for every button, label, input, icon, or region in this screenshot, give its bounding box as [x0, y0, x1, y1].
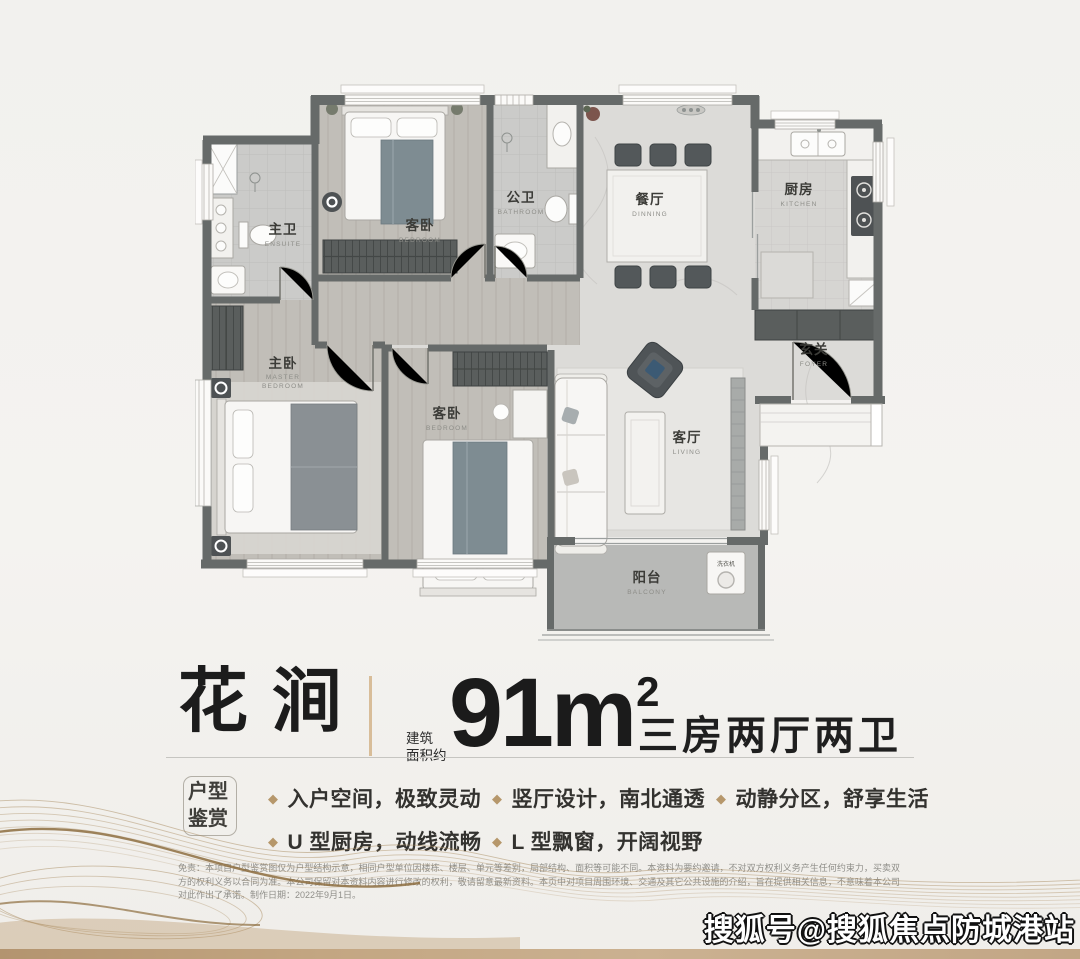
area-number: 91m — [449, 664, 634, 761]
svg-text:LIVING: LIVING — [673, 449, 702, 456]
wardrobe-top-bedroom — [323, 240, 457, 273]
svg-text:BEDROOM: BEDROOM — [262, 383, 304, 390]
area-value: 91m 2 — [449, 664, 660, 761]
room-label-ensuite: 主卫 ENSUITE — [265, 221, 302, 248]
layout-description: 三房两厅两卫 — [638, 703, 902, 761]
svg-text:厨房: 厨房 — [785, 181, 814, 197]
washer-icon — [707, 552, 745, 594]
coffee-table — [625, 412, 665, 514]
area-prefix: 建筑 面积约 — [406, 730, 452, 764]
area-prefix-line1: 建筑 — [406, 730, 452, 747]
plan-name: 花涧 — [178, 664, 366, 741]
svg-text:BEDROOM: BEDROOM — [399, 237, 441, 244]
room-label-dining: 餐厅 DINNING — [632, 191, 668, 218]
svg-text:公卫: 公卫 — [507, 190, 536, 205]
washer-label: 洗衣机 — [717, 560, 735, 568]
floor-plan: 主卫 ENSUITE 客卧 BEDROOM 公卫 BATHROOM 餐厅 DIN… — [195, 82, 920, 642]
svg-text:餐厅: 餐厅 — [635, 191, 665, 207]
section-divider — [166, 757, 914, 758]
room-label-balcony: 阳台 BALCONY — [627, 569, 666, 596]
svg-text:主卧: 主卧 — [269, 355, 298, 371]
svg-text:客卧: 客卧 — [405, 217, 435, 233]
watermark: 搜狐号@搜狐焦点防城港站 — [704, 905, 1075, 949]
room-label-kitchen: 厨房 KITCHEN — [781, 181, 818, 208]
svg-text:DINNING: DINNING — [632, 211, 668, 218]
floor-hallway — [315, 278, 580, 345]
entry-landing — [760, 404, 882, 446]
svg-text:BATHROOM: BATHROOM — [498, 209, 545, 216]
svg-text:玄关: 玄关 — [800, 341, 829, 357]
svg-text:KITCHEN: KITCHEN — [781, 201, 818, 208]
sofa — [555, 374, 607, 554]
svg-text:主卫: 主卫 — [269, 221, 298, 237]
page: 主卫 ENSUITE 客卧 BEDROOM 公卫 BATHROOM 餐厅 DIN… — [0, 0, 1080, 959]
bottom-gold-band — [0, 949, 1080, 959]
area-prefix-line2: 面积约 — [406, 747, 452, 764]
room-label-foyer: 玄关 FOYER — [800, 341, 829, 368]
svg-text:客厅: 客厅 — [672, 429, 702, 445]
svg-text:FOYER: FOYER — [800, 361, 828, 368]
svg-text:ENSUITE: ENSUITE — [265, 241, 302, 248]
svg-text:BALCONY: BALCONY — [627, 589, 666, 596]
tv-console — [731, 378, 745, 530]
svg-text:MASTER: MASTER — [266, 374, 300, 381]
svg-text:阳台: 阳台 — [633, 569, 662, 585]
svg-text:BEDROOM: BEDROOM — [426, 425, 468, 432]
gold-divider — [369, 676, 372, 756]
room-label-living: 客厅 LIVING — [672, 429, 702, 456]
svg-text:客卧: 客卧 — [432, 405, 462, 421]
